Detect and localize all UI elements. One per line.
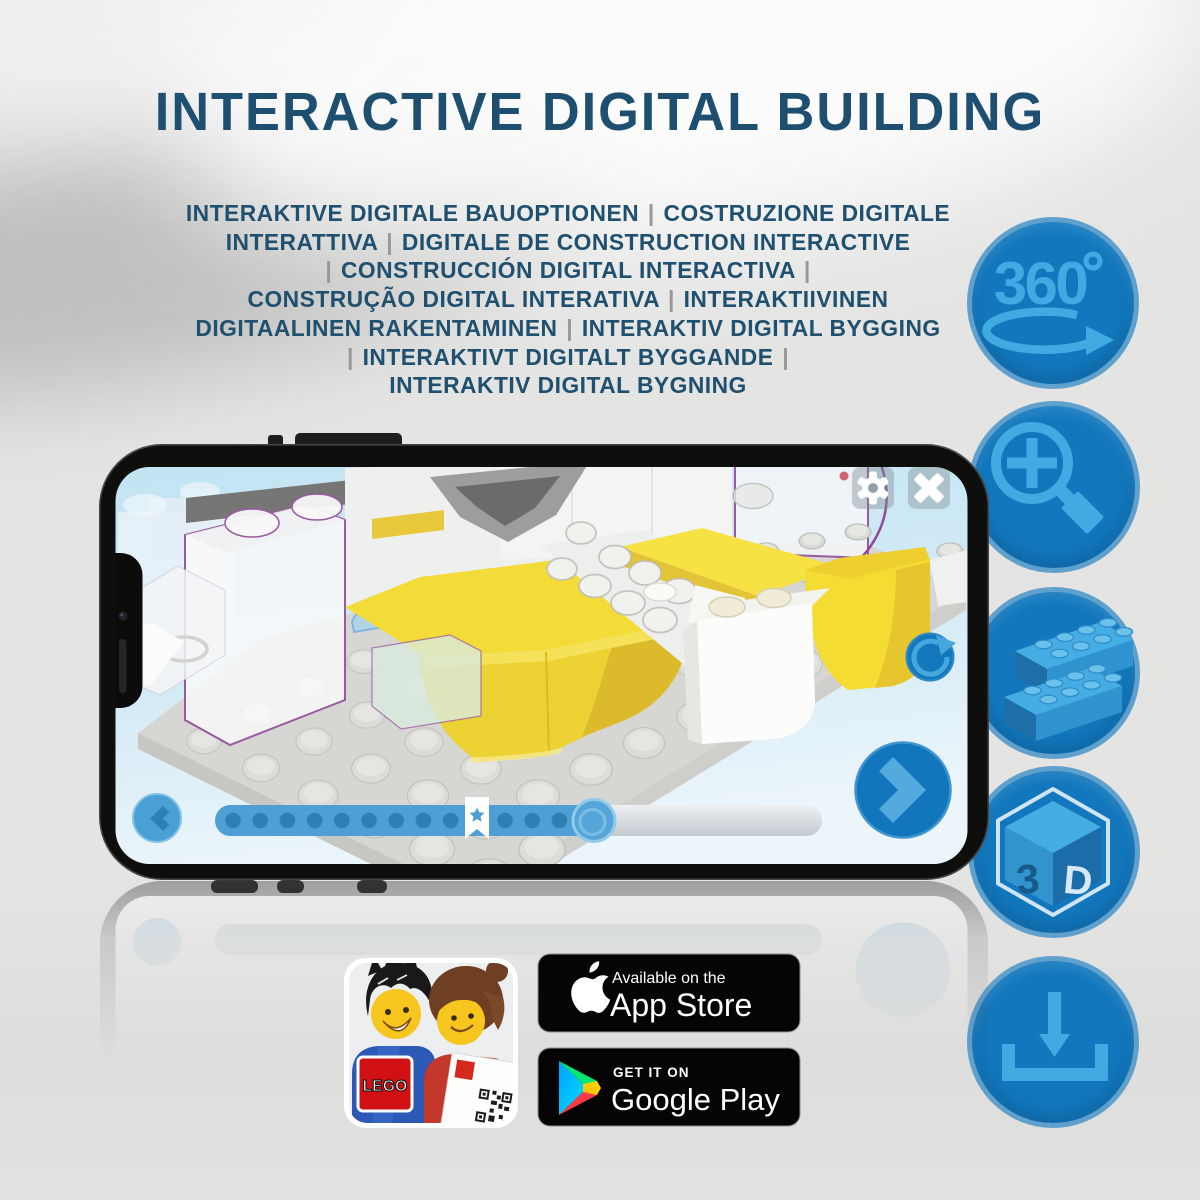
svg-text:App Store: App Store — [610, 987, 752, 1023]
svg-text:GET IT ON: GET IT ON — [613, 1065, 690, 1080]
svg-text:LEGO: LEGO — [363, 1078, 408, 1095]
svg-text:360: 360 — [994, 250, 1087, 317]
svg-text:3: 3 — [1015, 855, 1042, 903]
svg-text:D: D — [1062, 858, 1095, 904]
svg-text:Available on the: Available on the — [612, 970, 726, 987]
svg-text:Google Play: Google Play — [611, 1082, 780, 1117]
